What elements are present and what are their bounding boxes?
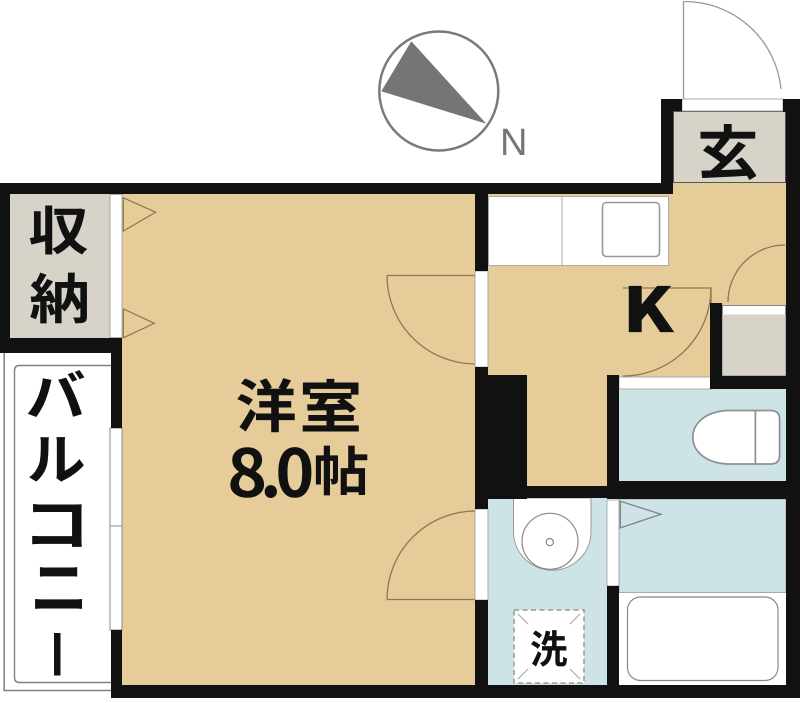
svg-text:N: N: [500, 122, 527, 164]
